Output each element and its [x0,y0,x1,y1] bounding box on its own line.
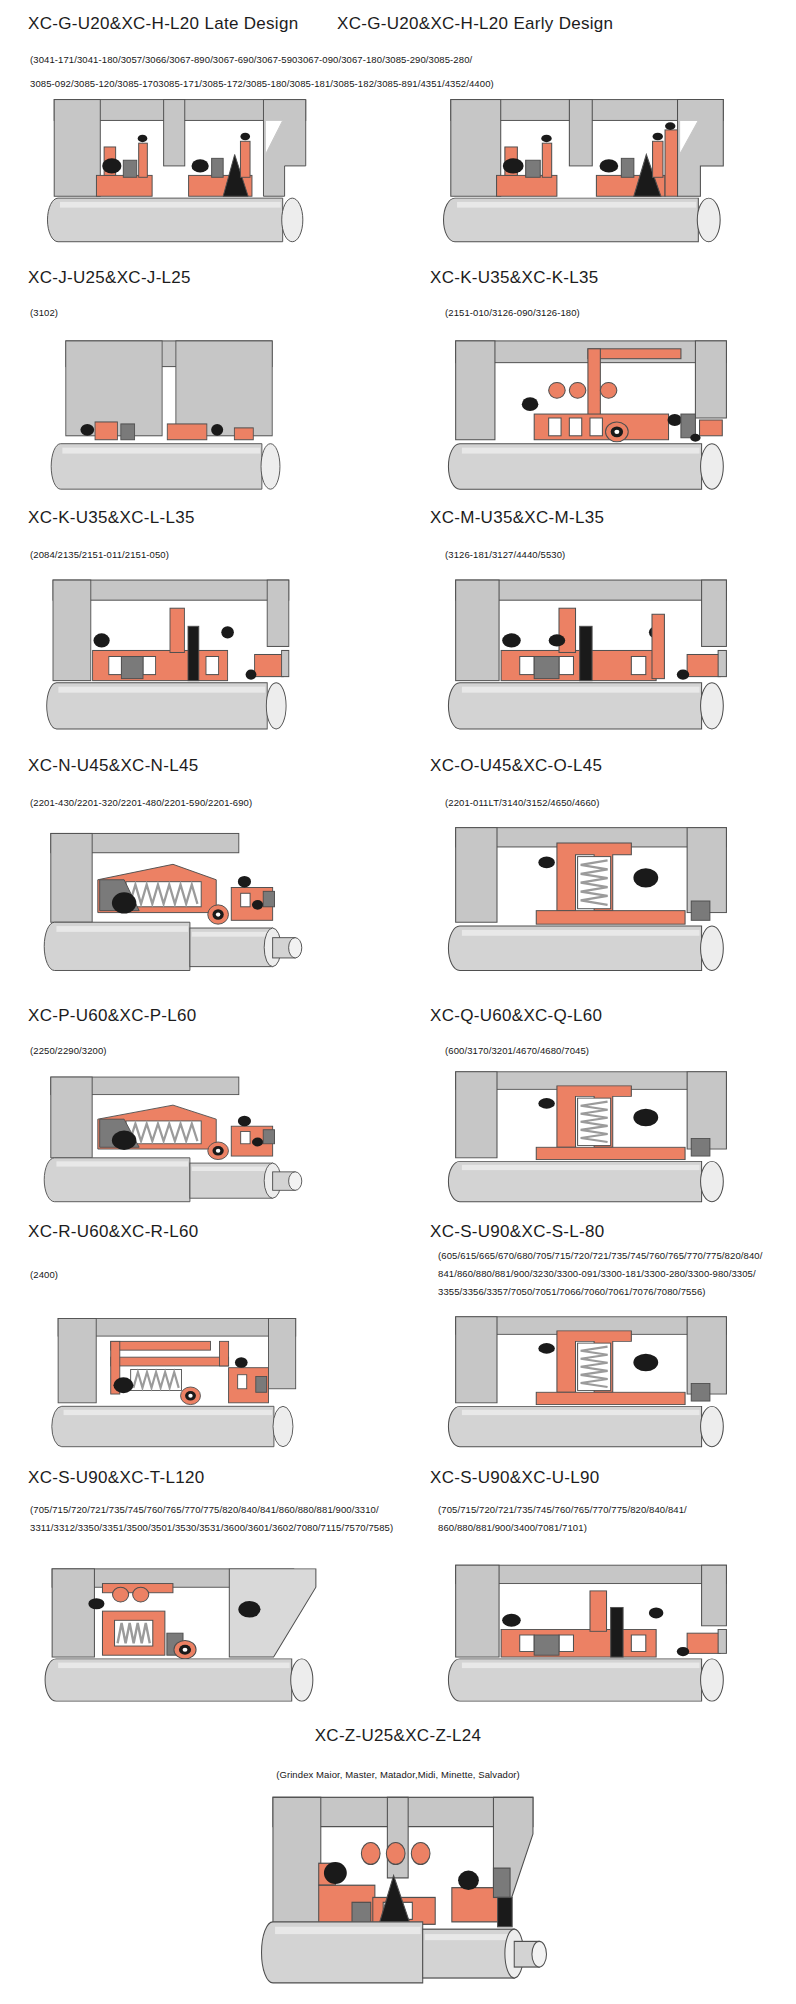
seal-diagram [35,570,305,743]
seal-cross-section-svg [32,1556,334,1714]
seal-diagram [435,818,745,984]
seal-diagram [40,1308,312,1459]
seal-title: XC-Z-U25&XC-Z-L24 [0,1726,796,1746]
part-numbers-line: (2201-430/2201-320/2201-480/2201-590/220… [30,794,252,812]
part-numbers-line: (2201-011LT/3140/3152/4650/4660) [445,794,599,812]
part-numbers: (Grindex Maior, Master, Matador,Midi, Mi… [0,1766,796,1784]
part-numbers-line: (Grindex Maior, Master, Matador,Midi, Mi… [0,1766,796,1784]
seal-cross-section-svg [435,1556,745,1714]
seal-title: XC-G-U20&XC-H-L20 Late Design [28,14,298,34]
part-numbers: (2084/2135/2151-011/2151-050) [30,546,169,564]
seal-title: XC-M-U35&XC-M-L35 [430,508,604,528]
seal-title: XC-G-U20&XC-H-L20 Early Design [337,14,613,34]
seal-title: XC-R-U60&XC-R-L60 [28,1222,198,1242]
seal-cross-section-svg [40,1308,312,1459]
part-numbers: (2250/2290/3200) [30,1042,107,1060]
part-numbers-line: (2084/2135/2151-011/2151-050) [30,546,169,564]
seal-diagram [435,333,745,503]
part-numbers: (2201-011LT/3140/3152/4650/4660) [445,794,599,812]
seal-cross-section-svg [435,818,745,984]
part-numbers: (3126-181/3127/4440/5530) [445,546,565,564]
part-numbers: (600/3170/3201/4670/4680/7045) [445,1042,589,1060]
seal-cross-section-svg [435,333,745,503]
seal-cross-section-svg [430,92,742,255]
seal-cross-section-svg [32,1063,314,1214]
part-numbers: (705/715/720/721/735/745/760/765/770/775… [30,1501,393,1537]
part-numbers: (2201-430/2201-320/2201-480/2201-590/220… [30,794,252,812]
seal-cross-section-svg [435,1308,745,1459]
seal-cross-section-svg [40,333,298,503]
part-numbers-line: (2250/2290/3200) [30,1042,107,1060]
part-numbers-line: 841/860/880/881/900/3230/3300-091/3300-1… [438,1265,762,1283]
seal-diagram [32,818,314,984]
seal-title: XC-K-U35&XC-L-L35 [28,508,195,528]
part-numbers: (3102) [30,304,58,322]
seal-title: XC-S-U90&XC-U-L90 [430,1468,599,1488]
seal-diagram [248,1790,560,2000]
part-numbers-line: (2400) [30,1266,58,1284]
part-numbers-line: 3355/3356/3357/7050/7051/7066/7060/7061/… [438,1283,762,1301]
seal-title: XC-S-U90&XC-S-L-80 [430,1222,605,1242]
seal-title: XC-P-U60&XC-P-L60 [28,1006,197,1026]
seal-title: XC-S-U90&XC-T-L120 [28,1468,204,1488]
seal-diagram [435,1063,745,1214]
part-numbers-line: (3041-171/3041-180/3057/3066/3067-890/30… [30,48,494,72]
part-numbers: (605/615/665/670/680/705/715/720/721/735… [438,1247,762,1301]
part-numbers-line: (3126-181/3127/4440/5530) [445,546,565,564]
part-numbers: (2151-010/3126-090/3126-180) [445,304,580,322]
catalog-page: XC-G-U20&XC-H-L20 Late Design(3041-171/3… [0,0,796,2004]
seal-title: XC-K-U35&XC-K-L35 [430,268,599,288]
part-numbers: (3041-171/3041-180/3057/3066/3067-890/30… [30,48,494,96]
part-numbers-line: 3311/3312/3350/3351/3500/3501/3530/3531/… [30,1519,393,1537]
seal-cross-section-svg [435,1063,745,1214]
seal-cross-section-svg [35,92,323,255]
part-numbers-line: (705/715/720/721/735/745/760/765/770/775… [438,1501,687,1519]
seal-diagram [32,1063,314,1214]
part-numbers-line: (705/715/720/721/735/745/760/765/770/775… [30,1501,393,1519]
part-numbers: (705/715/720/721/735/745/760/765/770/775… [438,1501,687,1537]
part-numbers-line: (600/3170/3201/4670/4680/7045) [445,1042,589,1060]
seal-title: XC-J-U25&XC-J-L25 [28,268,191,288]
part-numbers-line: (2151-010/3126-090/3126-180) [445,304,580,322]
seal-diagram [430,92,742,255]
seal-title: XC-Q-U60&XC-Q-L60 [430,1006,602,1026]
seal-diagram [40,333,298,503]
seal-cross-section-svg [32,818,314,984]
seal-diagram [435,570,745,743]
seal-diagram [435,1308,745,1459]
seal-cross-section-svg [248,1790,560,2000]
seal-diagram [32,1556,334,1714]
seal-title: XC-N-U45&XC-N-L45 [28,756,198,776]
part-numbers-line: (605/615/665/670/680/705/715/720/721/735… [438,1247,762,1265]
seal-cross-section-svg [35,570,305,743]
seal-title: XC-O-U45&XC-O-L45 [430,756,602,776]
part-numbers-line: 860/880/881/900/3400/7081/7101) [438,1519,687,1537]
seal-cross-section-svg [435,570,745,743]
part-numbers-line: (3102) [30,304,58,322]
seal-diagram [435,1556,745,1714]
seal-diagram [35,92,323,255]
part-numbers: (2400) [30,1266,58,1284]
